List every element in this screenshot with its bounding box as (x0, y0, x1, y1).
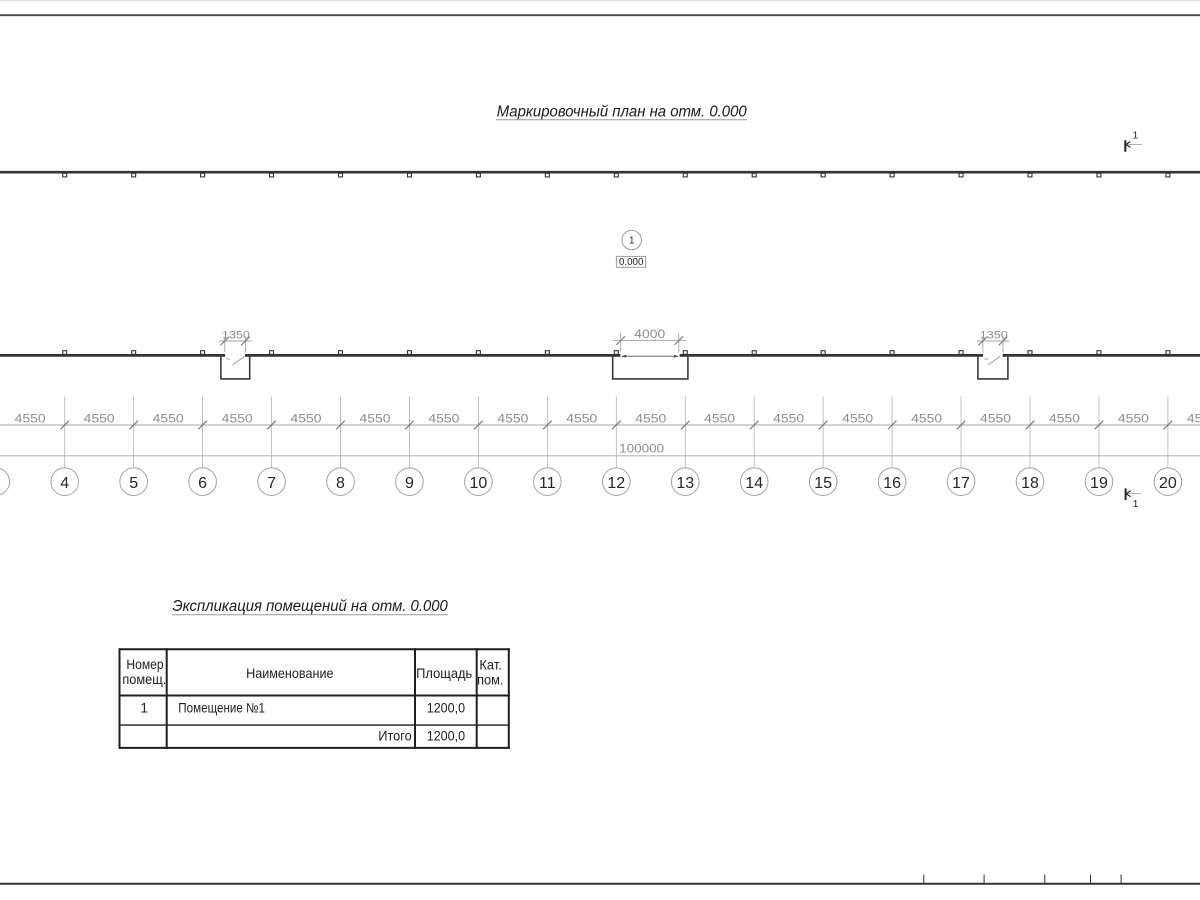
svg-text:4550: 4550 (15, 412, 46, 426)
svg-text:4550: 4550 (497, 412, 528, 426)
svg-text:пом.: пом. (477, 672, 503, 687)
svg-text:19: 19 (1090, 475, 1108, 492)
svg-text:1: 1 (140, 701, 148, 716)
svg-text:7: 7 (267, 475, 276, 492)
svg-text:12: 12 (607, 475, 625, 492)
svg-text:4550: 4550 (566, 412, 597, 426)
svg-text:4: 4 (60, 475, 69, 492)
svg-text:4550: 4550 (842, 412, 873, 426)
svg-text:4000: 4000 (634, 328, 665, 341)
svg-text:4550: 4550 (222, 412, 253, 426)
svg-text:4550: 4550 (1118, 412, 1149, 426)
svg-text:1: 1 (1132, 130, 1138, 142)
svg-text:4550: 4550 (84, 412, 115, 426)
svg-text:1350: 1350 (980, 330, 1008, 342)
svg-text:Экспликация помещений на отм.: Экспликация помещений на отм. 0.000 (172, 598, 448, 615)
svg-text:1350: 1350 (222, 330, 250, 342)
svg-text:4550: 4550 (360, 412, 391, 426)
svg-text:13: 13 (676, 475, 694, 492)
svg-text:4550: 4550 (773, 412, 804, 426)
svg-text:1200,0: 1200,0 (427, 701, 466, 716)
svg-text:4550: 4550 (704, 412, 735, 426)
svg-text:8: 8 (336, 475, 345, 492)
svg-text:18: 18 (1021, 475, 1039, 492)
svg-text:20: 20 (1159, 475, 1177, 492)
svg-text:4550: 4550 (1049, 412, 1080, 426)
svg-text:Помещение №1: Помещение №1 (178, 701, 265, 716)
svg-text:Кат.: Кат. (479, 657, 502, 672)
svg-text:4550: 4550 (428, 412, 459, 426)
svg-text:100000: 100000 (619, 442, 664, 456)
svg-text:15: 15 (814, 475, 832, 492)
svg-text:помещ.: помещ. (122, 672, 166, 687)
svg-text:1: 1 (629, 235, 634, 246)
svg-text:4550: 4550 (153, 412, 184, 426)
svg-text:10: 10 (470, 475, 488, 492)
svg-text:1200,0: 1200,0 (427, 729, 466, 744)
svg-text:5: 5 (129, 475, 138, 492)
svg-text:4550: 4550 (980, 412, 1011, 426)
svg-text:6: 6 (198, 475, 207, 492)
svg-text:4550: 4550 (1187, 412, 1200, 426)
svg-text:Маркировочный план на отм. 0.0: Маркировочный план на отм. 0.000 (497, 103, 747, 120)
svg-text:1: 1 (1133, 498, 1139, 510)
svg-text:17: 17 (952, 475, 970, 492)
svg-text:9: 9 (405, 475, 414, 492)
svg-text:4550: 4550 (911, 412, 942, 426)
svg-text:Площадь: Площадь (416, 666, 472, 681)
svg-text:0.000: 0.000 (619, 257, 644, 268)
svg-text:4550: 4550 (635, 412, 666, 426)
svg-text:Наименование: Наименование (246, 666, 333, 681)
svg-text:Номер: Номер (126, 657, 163, 672)
svg-text:14: 14 (745, 475, 763, 492)
svg-text:Итого: Итого (378, 729, 411, 744)
svg-text:16: 16 (883, 475, 901, 492)
svg-text:4550: 4550 (291, 412, 322, 426)
svg-text:11: 11 (539, 475, 556, 492)
